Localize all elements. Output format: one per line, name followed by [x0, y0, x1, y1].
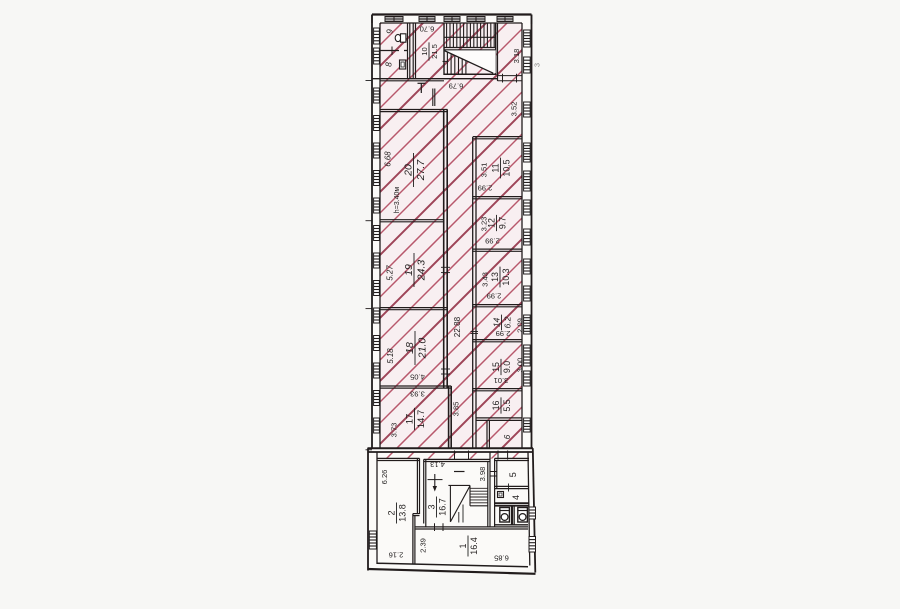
svg-text:13: 13 — [490, 272, 500, 282]
svg-text:14: 14 — [491, 318, 501, 328]
svg-text:6.26: 6.26 — [380, 470, 389, 485]
svg-text:16: 16 — [491, 401, 501, 411]
svg-text:2.09: 2.09 — [515, 318, 524, 333]
svg-text:3.98: 3.98 — [478, 467, 487, 482]
svg-text:3.23: 3.23 — [479, 217, 488, 232]
svg-text:9.7: 9.7 — [498, 217, 508, 229]
svg-text:6.68: 6.68 — [383, 151, 392, 167]
svg-text:8: 8 — [384, 62, 394, 67]
svg-text:5.27: 5.27 — [385, 265, 394, 281]
svg-text:2.16: 2.16 — [389, 550, 404, 559]
svg-text:9.0: 9.0 — [502, 361, 512, 373]
svg-text:16.7: 16.7 — [438, 498, 448, 516]
svg-text:2.99: 2.99 — [487, 291, 502, 300]
svg-text:6.2: 6.2 — [502, 316, 512, 328]
svg-text:3.43: 3.43 — [480, 272, 489, 287]
svg-text:10.3: 10.3 — [501, 268, 511, 285]
svg-text:3.93: 3.93 — [410, 389, 425, 398]
svg-text:3.85: 3.85 — [451, 402, 460, 417]
svg-text:14.7: 14.7 — [416, 410, 427, 429]
svg-text:4.13: 4.13 — [430, 460, 445, 469]
svg-text:9: 9 — [385, 29, 395, 34]
svg-text:6.85: 6.85 — [494, 553, 509, 562]
svg-text:18: 18 — [404, 342, 416, 354]
svg-text:3.51: 3.51 — [479, 163, 488, 178]
svg-text:17: 17 — [404, 414, 415, 425]
svg-text:4: 4 — [511, 495, 521, 500]
svg-text:19: 19 — [403, 264, 415, 276]
svg-text:3.18: 3.18 — [512, 49, 521, 64]
svg-text:21.5: 21.5 — [430, 44, 439, 59]
svg-text:4.05: 4.05 — [410, 372, 425, 381]
svg-text:3: 3 — [426, 504, 436, 509]
svg-text:5.5: 5.5 — [502, 399, 512, 411]
svg-text:3.00: 3.00 — [515, 358, 524, 373]
svg-text:5.18: 5.18 — [386, 348, 395, 364]
svg-text:2.99: 2.99 — [478, 183, 493, 192]
svg-text:20: 20 — [402, 164, 414, 177]
svg-text:6: 6 — [503, 434, 512, 439]
svg-text:10.5: 10.5 — [502, 159, 512, 176]
svg-text:3: 3 — [533, 63, 542, 67]
svg-text:6.70: 6.70 — [420, 24, 435, 33]
svg-text:15: 15 — [491, 362, 501, 372]
svg-text:3.01: 3.01 — [494, 376, 509, 385]
svg-text:10: 10 — [420, 47, 429, 55]
svg-text:h=3.40м: h=3.40м — [394, 187, 401, 214]
svg-text:16.4: 16.4 — [469, 537, 479, 555]
svg-text:1: 1 — [458, 543, 468, 548]
svg-text:21.0: 21.0 — [416, 338, 428, 360]
svg-text:3.52: 3.52 — [509, 102, 518, 117]
svg-text:2.99: 2.99 — [496, 329, 511, 338]
svg-text:27.7: 27.7 — [415, 159, 427, 182]
svg-text:2.99: 2.99 — [485, 236, 500, 245]
svg-text:3.73: 3.73 — [389, 423, 398, 438]
svg-text:22.88: 22.88 — [453, 316, 462, 337]
svg-text:5: 5 — [508, 472, 518, 477]
svg-text:2: 2 — [386, 510, 396, 515]
svg-text:13.8: 13.8 — [398, 504, 408, 522]
svg-text:11: 11 — [490, 163, 500, 172]
svg-text:24.3: 24.3 — [415, 260, 427, 282]
svg-text:6.79: 6.79 — [449, 81, 464, 90]
svg-text:2.39: 2.39 — [418, 538, 427, 553]
